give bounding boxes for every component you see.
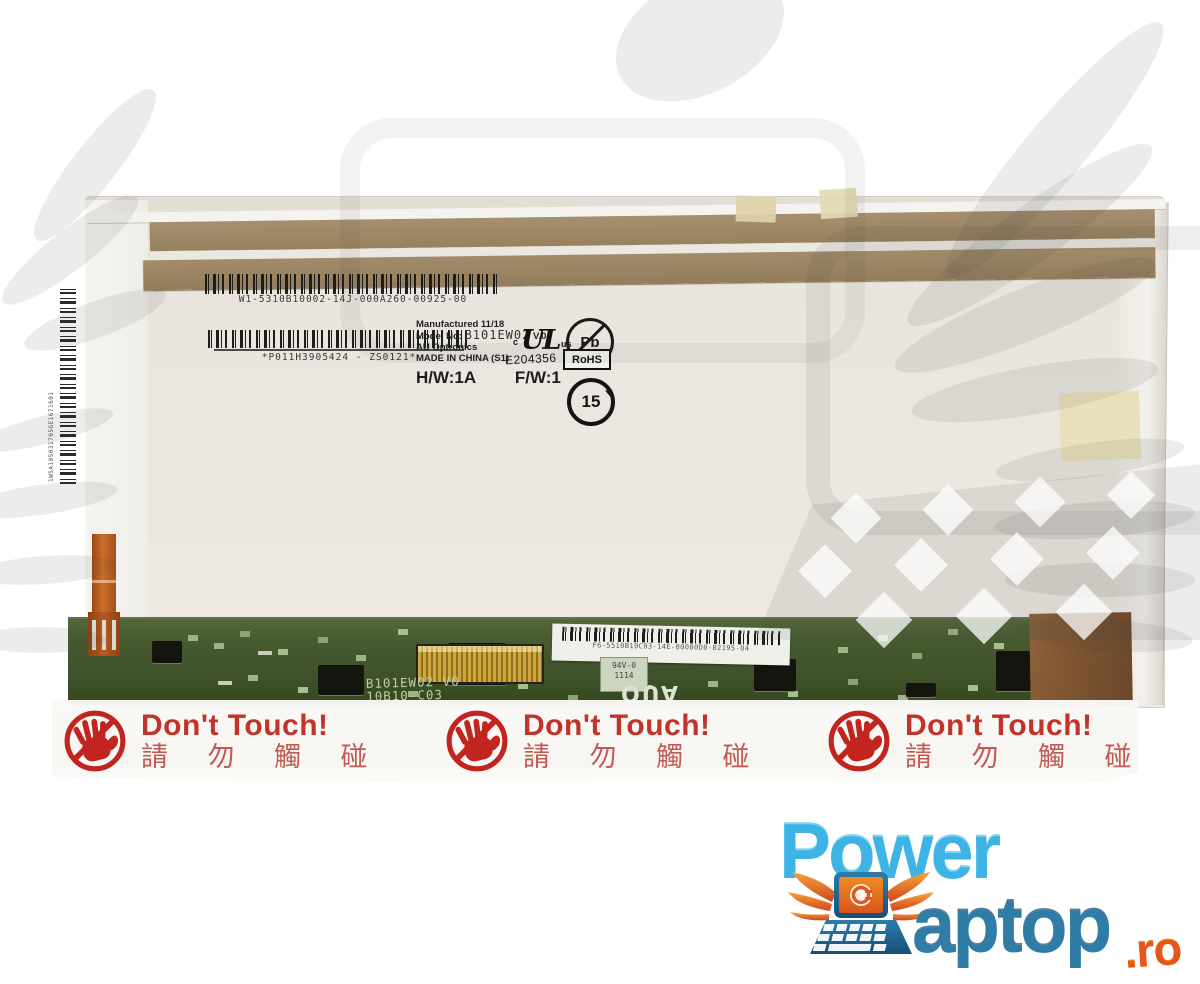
side-barcode-label: 1W5A105031705GE1671601	[52, 288, 78, 484]
pcb-ic-chip	[906, 683, 936, 697]
fw-value: F/W:1	[515, 368, 561, 387]
corner-tape-piece	[1059, 391, 1141, 462]
driver-pcb: F6-5510B10C03-14E-00000D0-02195-04 94V-0…	[68, 617, 1130, 705]
dont-touch-warning: Don't Touch! 請 勿 觸 碰	[62, 705, 384, 777]
barcode-stripes-vertical	[60, 288, 76, 484]
warning-title: Don't Touch!	[905, 710, 1148, 742]
serial-barcode-label: W1-5310B10002-14J-000A260-00925-00	[205, 274, 501, 308]
pcb-ic-chip	[152, 641, 182, 663]
pb-text: Pb	[580, 334, 599, 351]
no-touch-hand-icon	[62, 708, 128, 774]
warning-subtitle: 請 勿 觸 碰	[141, 742, 384, 772]
small-tape-piece	[819, 188, 858, 220]
pcb-barcode-label: F6-5510B10C03-14E-00000D0-02195-04	[552, 624, 791, 666]
no-touch-hand-icon	[826, 708, 892, 774]
dont-touch-warning: Don't Touch! 請 勿 觸 碰	[826, 705, 1148, 777]
pcb-solder-pads	[218, 681, 232, 685]
pcb-silkscreen: B101EW02 V0 10B10-C03	[366, 673, 517, 703]
warning-subtitle: 請 勿 觸 碰	[523, 742, 766, 772]
model-label: Model No:	[416, 331, 462, 342]
dont-touch-warning: Don't Touch! 請 勿 觸 碰	[444, 705, 766, 777]
small-tape-piece	[736, 195, 777, 222]
warning-text: Don't Touch! 請 勿 觸 碰	[905, 710, 1148, 772]
pcb-components	[188, 635, 198, 641]
kapton-tape-piece	[1029, 612, 1133, 708]
hw-value: H/W:1A	[416, 368, 476, 387]
warning-text: Don't Touch! 請 勿 觸 碰	[523, 710, 766, 772]
no-touch-hand-icon	[444, 708, 510, 774]
side-barcode-text: 1W5A105031705GE1671601	[48, 290, 58, 482]
warning-subtitle: 請 勿 觸 碰	[905, 742, 1148, 772]
product-photo-stage: W1-5310B10002-14J-000A260-00925-00 1W5A1…	[0, 0, 1200, 984]
barcode-text: W1-5310B10002-14J-000A260-00925-00	[205, 294, 501, 305]
brand-tld-ro: .ro	[1122, 920, 1183, 979]
china-rohs-15-icon: 15	[567, 378, 615, 426]
flex-cable-connector	[88, 612, 120, 656]
flammability-rating: 94V-0	[601, 661, 647, 671]
protective-film-strip: Don't Touch! 請 勿 觸 碰 Don't Touch! 請	[52, 700, 1138, 782]
ul-file-number: E204356	[505, 351, 557, 368]
barcode-stripes	[205, 274, 501, 294]
warning-title: Don't Touch!	[141, 710, 384, 742]
warning-title: Don't Touch!	[523, 710, 766, 742]
pcb-ic-chip	[318, 665, 364, 695]
rohs-text: RoHS	[572, 354, 602, 366]
warning-text: Don't Touch! 請 勿 觸 碰	[141, 710, 384, 772]
epup-years: 15	[582, 392, 601, 412]
ul-c: c	[513, 337, 518, 347]
brand-word-aptop: aptop	[912, 880, 1109, 971]
rohs-mark: RoHS	[563, 349, 611, 370]
